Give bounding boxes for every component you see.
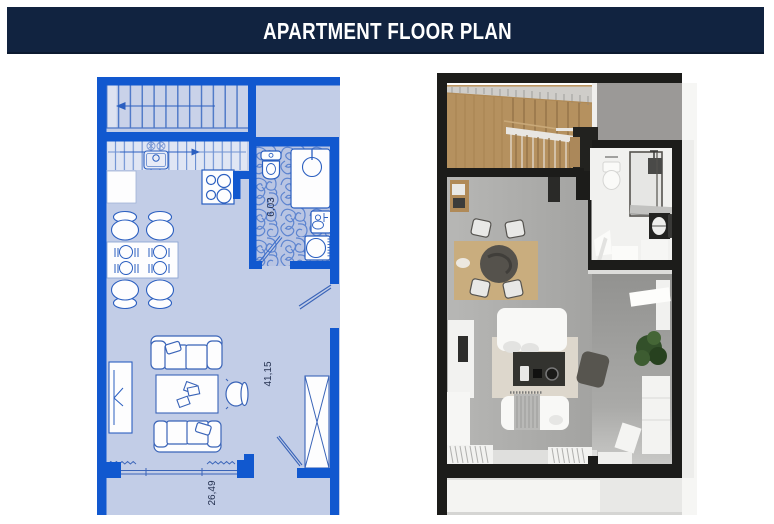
svg-text:41,15: 41,15 <box>263 361 274 386</box>
svg-text:26,49: 26,49 <box>207 480 218 505</box>
svg-text:6,03: 6,03 <box>266 197 277 217</box>
